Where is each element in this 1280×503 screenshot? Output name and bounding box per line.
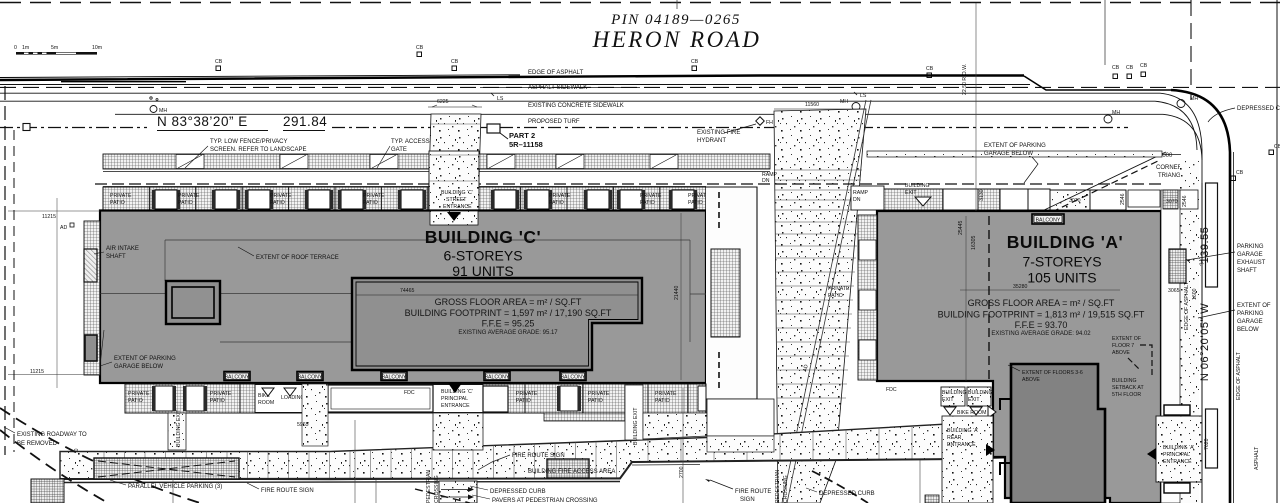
svg-text:PATIO: PATIO [588,398,603,404]
svg-text:FDC: FDC [886,387,897,393]
svg-text:STREET: STREET [446,197,467,203]
svg-text:PATIO: PATIO [640,200,655,206]
svg-text:ROOM: ROOM [258,400,274,406]
svg-text:EXHAUST: EXHAUST [1237,260,1266,266]
svg-text:5R–11158: 5R–11158 [509,140,543,149]
svg-text:EXIT: EXIT [942,397,954,403]
svg-text:PRIVATE: PRIVATE [640,193,662,199]
svg-text:BUILDING ‘A’: BUILDING ‘A’ [1163,445,1194,451]
svg-text:11560: 11560 [805,102,819,108]
svg-text:2546: 2546 [1182,195,1188,207]
svg-text:BUILDING ‘A’: BUILDING ‘A’ [947,428,978,434]
svg-text:EXTENT OF PARKING: EXTENT OF PARKING [114,356,176,362]
svg-text:3070: 3070 [1166,199,1178,205]
svg-text:LOADING: LOADING [281,395,304,401]
svg-text:PRIVATE: PRIVATE [363,193,385,199]
svg-text:ASPHALT SIDEWALK: ASPHALT SIDEWALK [528,85,587,91]
svg-text:PRIVATE: PRIVATE [828,286,850,292]
svg-text:PATIO: PATIO [270,200,285,206]
svg-text:EXTENT OF PARKING: EXTENT OF PARKING [984,143,1046,149]
svg-text:N 06°20’05” W: N 06°20’05” W [1199,303,1211,381]
svg-text:PATIO: PATIO [655,398,670,404]
svg-text:1600: 1600 [1192,288,1198,300]
svg-text:TYP. LOW FENCE/PRIVACY: TYP. LOW FENCE/PRIVACY [210,139,287,145]
svg-text:EDGE OF ASPHALT: EDGE OF ASPHALT [528,70,584,76]
svg-text:25445: 25445 [958,220,964,235]
svg-text:ENTRANCE: ENTRANCE [441,403,470,409]
svg-text:PART 2: PART 2 [509,131,535,140]
svg-text:6-STOREYS: 6-STOREYS [443,248,522,264]
svg-text:BALCONY: BALCONY [225,375,250,381]
svg-text:5965: 5965 [297,422,309,428]
svg-text:PRIVATE: PRIVATE [588,391,610,397]
svg-text:BUILDING ‘C’: BUILDING ‘C’ [441,190,473,196]
svg-text:BALCONY: BALCONY [382,375,407,381]
svg-text:PATIO: PATIO [178,200,193,206]
svg-text:CB: CB [1140,63,1148,69]
svg-text:DEPRESSED CURB: DEPRESSED CURB [819,491,875,497]
svg-text:EXISTING ROADWAY TO: EXISTING ROADWAY TO [17,432,87,438]
svg-text:N 83°38’20” E: N 83°38’20” E [157,114,248,129]
svg-text:FIRE ROUTE SIGN: FIRE ROUTE SIGN [512,453,565,459]
svg-text:BUILDING 'A': BUILDING 'A' [1007,232,1123,252]
svg-text:EXISTING AVERAGE GRADE: 95.17: EXISTING AVERAGE GRADE: 95.17 [458,330,558,336]
svg-text:SIGN: SIGN [740,497,755,503]
svg-text:ENTRANCE: ENTRANCE [443,204,472,210]
svg-text:GATE: GATE [391,147,407,153]
svg-text:FDC: FDC [404,390,415,396]
svg-text:7620: 7620 [1204,438,1210,450]
svg-text:PATIO: PATIO [828,293,843,299]
svg-text:5m: 5m [51,45,58,51]
svg-text:21440: 21440 [674,285,680,300]
svg-text:BUILDING: BUILDING [905,183,930,189]
svg-text:BUILDING FIRE ACCESS AREA: BUILDING FIRE ACCESS AREA [528,469,615,475]
svg-text:F.F.E = 95.25: F.F.E = 95.25 [482,319,535,329]
svg-text:DN: DN [762,178,770,184]
svg-text:PATIO: PATIO [549,200,564,206]
svg-text:TYP. ACCESS: TYP. ACCESS [391,139,430,145]
svg-text:BALCONY: BALCONY [298,375,323,381]
svg-text:PRIVATE: PRIVATE [178,193,200,199]
svg-text:BALCONY: BALCONY [1036,218,1061,224]
svg-text:GROSS FLOOR AREA = m² / SQ.: GROSS FLOOR AREA = m² / SQ.FT [968,298,1115,308]
svg-text:PARALLEL VEHICLE PARKING (3): PARALLEL VEHICLE PARKING (3) [128,484,222,490]
svg-text:LS: LS [860,93,867,99]
svg-text:CB: CB [1236,170,1244,176]
svg-text:PIN 04189—0265: PIN 04189—0265 [610,12,741,28]
svg-text:BELOW: BELOW [1237,327,1259,333]
svg-text:91 UNITS: 91 UNITS [452,263,513,279]
svg-text:SHAFT: SHAFT [106,254,126,260]
svg-text:PRIVATE: PRIVATE [128,391,150,397]
svg-text:EXIT: EXIT [968,397,980,403]
svg-text:0: 0 [14,45,17,51]
svg-text:DEPRESSED CURB: DEPRESSED CURB [1237,106,1280,112]
svg-text:105 UNITS: 105 UNITS [1027,270,1096,286]
svg-text:BUILDING: BUILDING [1112,378,1137,384]
svg-text:AD: AD [60,225,67,231]
svg-text:291.84: 291.84 [283,114,327,129]
svg-text:EXTENT OF FLOORS 3-6: EXTENT OF FLOORS 3-6 [1022,370,1083,376]
svg-text:PATIO: PATIO [128,398,143,404]
svg-text:PARKING: PARKING [1237,311,1264,317]
svg-text:PRIVATE: PRIVATE [549,193,571,199]
svg-text:CB: CB [1126,65,1134,71]
svg-text:GARAGE BELOW: GARAGE BELOW [984,151,1033,157]
svg-text:3130: 3130 [979,189,985,201]
svg-text:2546: 2546 [1120,193,1126,205]
svg-text:2700: 2700 [679,466,685,478]
svg-text:5TH FLOOR: 5TH FLOOR [1112,392,1141,398]
svg-text:BUILDING: BUILDING [968,390,993,396]
svg-text:CB: CB [691,59,699,65]
svg-text:PRIVATE: PRIVATE [110,193,132,199]
svg-text:BUILDING: BUILDING [942,390,967,396]
svg-text:PRIVATE: PRIVATE [270,193,292,199]
svg-text:PATIO: PATIO [516,398,531,404]
svg-text:ABOVE: ABOVE [1112,350,1130,356]
svg-text:EXTENT OF: EXTENT OF [1112,336,1141,342]
svg-text:SCREEN. REFER TO LANDSCAPE: SCREEN. REFER TO LANDSCAPE [210,147,306,153]
svg-text:GARAGE: GARAGE [1237,319,1263,325]
svg-text:BUILDING EXIT: BUILDING EXIT [176,409,182,447]
svg-text:74465: 74465 [400,288,415,294]
svg-text:1m: 1m [22,45,29,51]
svg-text:LS: LS [497,96,504,102]
svg-text:BALCONY: BALCONY [485,375,510,381]
svg-text:MH: MH [1112,110,1120,116]
svg-text:PAVERS AT PEDESTRIAN CROSSING: PAVERS AT PEDESTRIAN CROSSING [492,498,598,503]
svg-text:CB: CB [1112,65,1120,71]
svg-text:RAMP: RAMP [853,190,869,196]
svg-text:PRINCIPAL: PRINCIPAL [1163,452,1190,458]
svg-text:REAR: REAR [947,435,962,441]
svg-text:PROPOSED TURF: PROPOSED TURF [528,119,580,125]
svg-text:FIRE ROUTE: FIRE ROUTE [735,489,771,495]
svg-text:PATIO: PATIO [210,398,225,404]
svg-text:DN: DN [853,197,861,203]
svg-text:BIKE ROOM: BIKE ROOM [957,410,986,416]
svg-text:CROSSING: CROSSING [783,475,789,503]
svg-text:EXISTING CONCRETE SIDEWALK: EXISTING CONCRETE SIDEWALK [528,103,624,109]
svg-text:AIR INTAKE: AIR INTAKE [106,246,139,252]
svg-text:FLOOR 7: FLOOR 7 [1112,343,1134,349]
svg-text:CB: CB [451,59,459,65]
svg-text:SHAFT: SHAFT [1237,268,1257,274]
svg-text:SETBACK AT: SETBACK AT [1112,385,1144,391]
svg-text:HYDRANT: HYDRANT [697,138,726,144]
svg-text:EXTENT OF ROOF TERRACE: EXTENT OF ROOF TERRACE [256,255,339,261]
svg-text:FIRE ROUTE SIGN: FIRE ROUTE SIGN [261,488,314,494]
svg-text:GARAGE: GARAGE [1237,252,1263,258]
svg-text:10m: 10m [92,45,102,51]
svg-text:11215: 11215 [30,369,44,375]
svg-text:F.F.E = 93.70: F.F.E = 93.70 [1015,320,1068,330]
svg-text:11215: 11215 [42,214,56,220]
svg-text:BUILDING FOOTPRINT = 1,813 m²: BUILDING FOOTPRINT = 1,813 m² / 19,515 S… [938,310,1145,320]
svg-text:CB: CB [926,66,934,72]
svg-text:BUILDING 'C': BUILDING 'C' [425,227,541,247]
svg-text:35280: 35280 [1013,284,1028,290]
svg-text:PARKING: PARKING [1237,244,1264,250]
svg-text:ENTRANCE: ENTRANCE [1163,459,1192,465]
svg-text:PEDESTRIAN: PEDESTRIAN [426,470,432,503]
svg-text:DEPRESSED CURB: DEPRESSED CURB [490,489,546,495]
svg-text:EXTENT OF: EXTENT OF [1237,303,1271,309]
svg-text:CB: CB [215,59,223,65]
svg-text:CB: CB [416,45,424,51]
svg-text:BUILDING FOOTPRINT = 1,597 m²: BUILDING FOOTPRINT = 1,597 m² / 17,190 S… [405,308,612,318]
svg-text:BE REMOVED: BE REMOVED [17,441,58,447]
svg-text:GARAGE BELOW: GARAGE BELOW [114,364,163,370]
svg-text:ABOVE: ABOVE [1022,377,1040,383]
svg-text:BUILDING EXIT: BUILDING EXIT [633,407,639,445]
svg-text:EDGE OF ASPHALT: EDGE OF ASPHALT [1236,351,1242,400]
svg-text:FH: FH [766,120,773,126]
svg-text:6225: 6225 [437,99,449,105]
svg-text:PATIO: PATIO [110,200,125,206]
svg-text:PRIVATE: PRIVATE [516,391,538,397]
svg-text:MH: MH [840,99,848,105]
svg-text:CROSSING: CROSSING [434,475,440,503]
svg-text:PATIO: PATIO [363,200,378,206]
svg-text:EXISTING AVERAGE GRADE: 94.02: EXISTING AVERAGE GRADE: 94.02 [991,331,1091,337]
svg-text:EDGE OF ASPHALT: EDGE OF ASPHALT [1184,281,1190,330]
svg-text:22.50 R.O.W.: 22.50 R.O.W. [962,64,968,95]
svg-text:3065: 3065 [1168,288,1180,294]
svg-text:EXIT: EXIT [905,190,917,196]
svg-text:ENTRANCE: ENTRANCE [947,442,976,448]
svg-text:7-STOREYS: 7-STOREYS [1022,254,1101,270]
svg-text:PRIVATE: PRIVATE [210,391,232,397]
svg-text:BALCONY: BALCONY [561,375,586,381]
svg-text:PRINCIPAL: PRINCIPAL [441,396,468,402]
svg-text:HERON ROAD: HERON ROAD [592,27,762,52]
svg-text:GROSS FLOOR AREA = m² / SQ.: GROSS FLOOR AREA = m² / SQ.FT [435,297,582,307]
svg-text:PATIO: PATIO [688,200,703,206]
svg-text:ASPHALT: ASPHALT [1254,446,1260,470]
svg-text:PEDESTRIAN: PEDESTRIAN [775,470,781,503]
svg-text:PRIVATE: PRIVATE [655,391,677,397]
svg-text:EXISTING FIRE: EXISTING FIRE [697,130,740,136]
svg-text:16305: 16305 [971,235,977,250]
svg-text:MH: MH [159,108,167,114]
